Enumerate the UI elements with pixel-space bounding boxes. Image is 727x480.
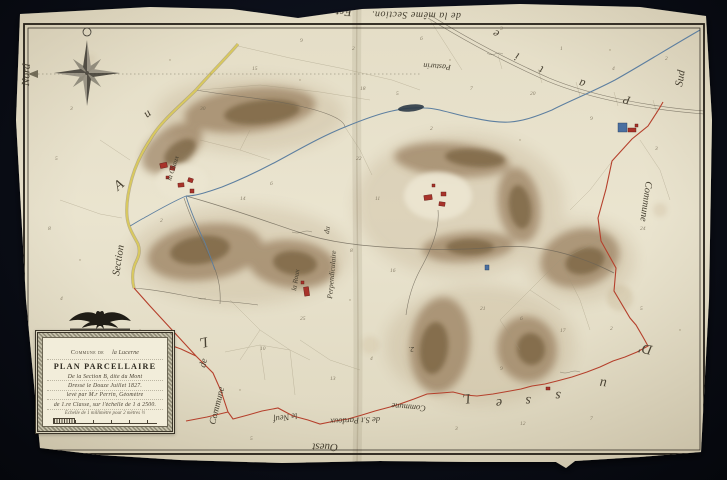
eagle-emblem bbox=[68, 309, 132, 331]
parcel-number: 21 bbox=[480, 306, 486, 312]
commune-name: la Lucerne bbox=[112, 350, 139, 356]
parcel-number: 20 bbox=[530, 91, 536, 97]
parcel-number: 2 bbox=[430, 126, 433, 132]
parcel-number: 8 bbox=[350, 248, 353, 254]
parcel-number: 22 bbox=[356, 156, 362, 162]
parcel-number: 6 bbox=[420, 36, 423, 42]
parcel-number: 6 bbox=[270, 181, 273, 187]
cartouche-title: PLAN PARCELLAIRE bbox=[47, 362, 163, 372]
cartouche-surveyor-line: levé par M.r Perrin, Géomètre bbox=[47, 392, 163, 400]
parcel-number: 6 bbox=[520, 316, 523, 322]
parcel-number: 5 bbox=[640, 306, 643, 312]
paper-fold bbox=[357, 8, 358, 464]
parcel-number: 4 bbox=[60, 295, 63, 302]
parcel-number: 4 bbox=[612, 65, 615, 72]
parcel-number: 16 bbox=[390, 268, 396, 274]
spread-se-4: e bbox=[496, 395, 503, 410]
scale-bar bbox=[47, 418, 163, 424]
parcel-number: 2 bbox=[610, 326, 613, 332]
parcel-number: 17 bbox=[560, 328, 566, 334]
parcel-number: 5 bbox=[396, 91, 399, 97]
parcel-number: 15 bbox=[252, 66, 258, 72]
label-num2: 2. bbox=[409, 345, 415, 353]
label-du: du bbox=[322, 226, 332, 235]
parcel-number: 13 bbox=[330, 376, 336, 382]
scale-note: Échelle de 1 millimètre pour 2 mètres ½ bbox=[47, 411, 163, 416]
spread-se-3: s bbox=[525, 393, 531, 408]
parcel-number: 7 bbox=[470, 86, 473, 92]
parcel-number: 2 bbox=[160, 218, 163, 224]
parcel-number: 8 bbox=[48, 226, 51, 232]
cartouche-section-line: De la Section B, dite du Mont bbox=[47, 374, 163, 382]
parcel-number: 9 bbox=[590, 116, 593, 122]
parcel-number: 30 bbox=[199, 106, 206, 112]
parcel-number: 11 bbox=[375, 196, 380, 202]
parcel-number: 18 bbox=[360, 86, 366, 92]
parcel-number: 9 bbox=[500, 366, 503, 372]
label-nord: Nord bbox=[20, 63, 33, 87]
parcel-number: 7 bbox=[590, 416, 593, 422]
parcel-number: 3 bbox=[454, 426, 458, 432]
parcel-number: 5 bbox=[250, 436, 253, 442]
label-top-edge: de la même Section. bbox=[371, 8, 461, 21]
parcel-number: 12 bbox=[520, 421, 526, 427]
parcel-number: 5 bbox=[55, 156, 58, 162]
parcel-number: 4 bbox=[370, 355, 373, 362]
parcel-number: 3 bbox=[654, 146, 658, 152]
scale-bar-line bbox=[75, 419, 157, 424]
parcel-number: 2 bbox=[352, 46, 355, 52]
cartouche-commune-line: Commune de la Lucerne bbox=[47, 341, 163, 360]
commune-label: Commune de bbox=[71, 349, 104, 356]
cartouche-date-line: Dressé le Douze Juillet 1827. bbox=[47, 383, 163, 391]
map-photo: 3584127159263142185720931462211816251013… bbox=[0, 0, 727, 480]
parcel-number: 10 bbox=[260, 346, 266, 352]
cartouche-border: Commune de la Lucerne PLAN PARCELLAIRE D… bbox=[37, 332, 173, 432]
cartouche-scale-line: de 1.re Classe, sur l'échelle de 1 à 250… bbox=[47, 402, 163, 410]
parcel-number: 25 bbox=[300, 316, 306, 322]
parcel-number: 3 bbox=[69, 106, 73, 112]
label-est: Est. bbox=[333, 5, 353, 19]
parcel-number: 14 bbox=[240, 195, 246, 202]
parcel-number: 9 bbox=[300, 38, 303, 44]
cartouche-guilloche-band: Commune de la Lucerne PLAN PARCELLAIRE D… bbox=[38, 333, 172, 431]
parcel-number: 24 bbox=[640, 225, 646, 232]
scale-bar-hatch bbox=[53, 418, 75, 424]
label-bottom-pardoux: de S.t Pardoux bbox=[330, 415, 381, 427]
title-cartouche: Commune de la Lucerne PLAN PARCELLAIRE D… bbox=[35, 330, 175, 434]
label-ouest: Ouest bbox=[311, 441, 338, 453]
parcel-number: 2 bbox=[665, 56, 668, 62]
cartouche-inner: Commune de la Lucerne PLAN PARCELLAIRE D… bbox=[42, 337, 168, 427]
parcel-number: 1 bbox=[560, 46, 563, 52]
